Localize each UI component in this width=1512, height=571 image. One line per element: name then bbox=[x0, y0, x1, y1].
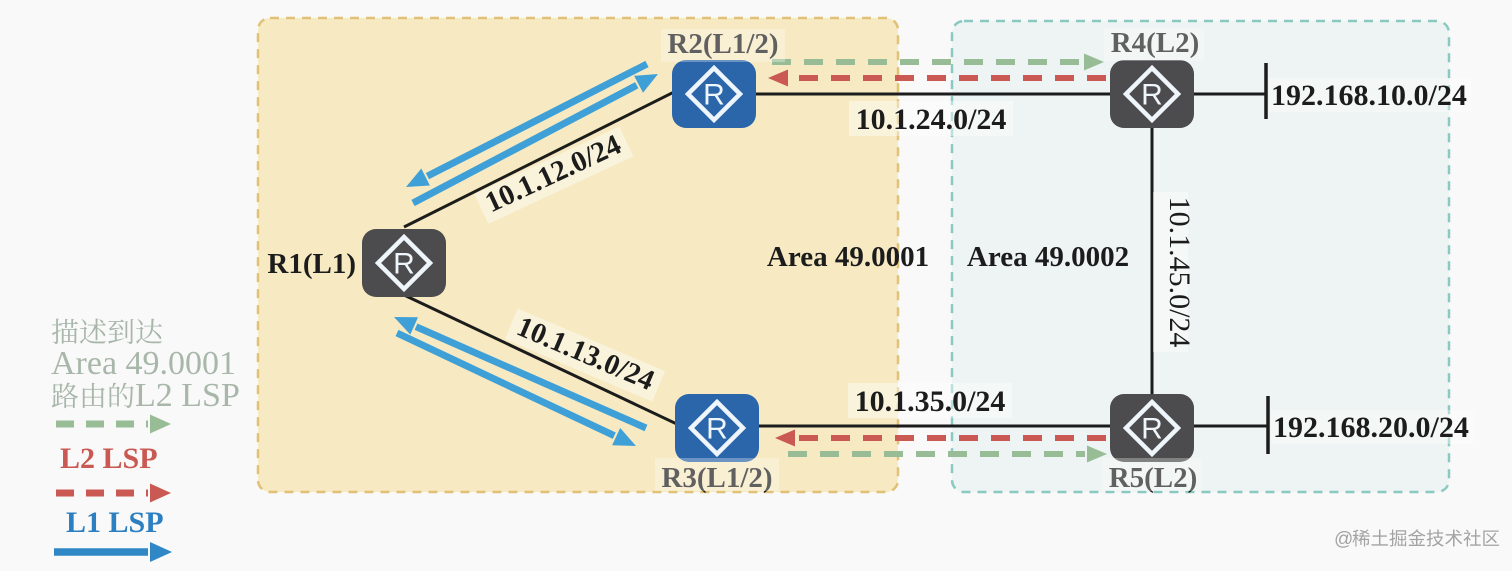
svg-text:L2 LSP: L2 LSP bbox=[135, 377, 240, 414]
svg-text:192.168.10.0/24: 192.168.10.0/24 bbox=[1271, 79, 1467, 112]
svg-text:Area 49.0001: Area 49.0001 bbox=[767, 241, 929, 273]
svg-text:L1 LSP: L1 LSP bbox=[66, 506, 164, 539]
svg-text:10.1.45.0/24: 10.1.45.0/24 bbox=[1163, 197, 1196, 348]
svg-text:R: R bbox=[703, 79, 725, 112]
svg-text:10.1.24.0/24: 10.1.24.0/24 bbox=[856, 103, 1007, 136]
svg-text:R: R bbox=[706, 413, 728, 446]
svg-text:192.168.20.0/24: 192.168.20.0/24 bbox=[1273, 411, 1469, 444]
svg-text:R1(L1): R1(L1) bbox=[267, 248, 356, 280]
svg-text:@: @ bbox=[1334, 529, 1353, 550]
svg-text:R: R bbox=[1141, 413, 1163, 446]
svg-text:L2 LSP: L2 LSP bbox=[60, 442, 158, 475]
svg-text:10.1.35.0/24: 10.1.35.0/24 bbox=[855, 385, 1006, 418]
svg-text:Area 49.0002: Area 49.0002 bbox=[967, 241, 1129, 273]
svg-text:R: R bbox=[393, 248, 415, 281]
svg-text:R: R bbox=[1141, 79, 1163, 112]
